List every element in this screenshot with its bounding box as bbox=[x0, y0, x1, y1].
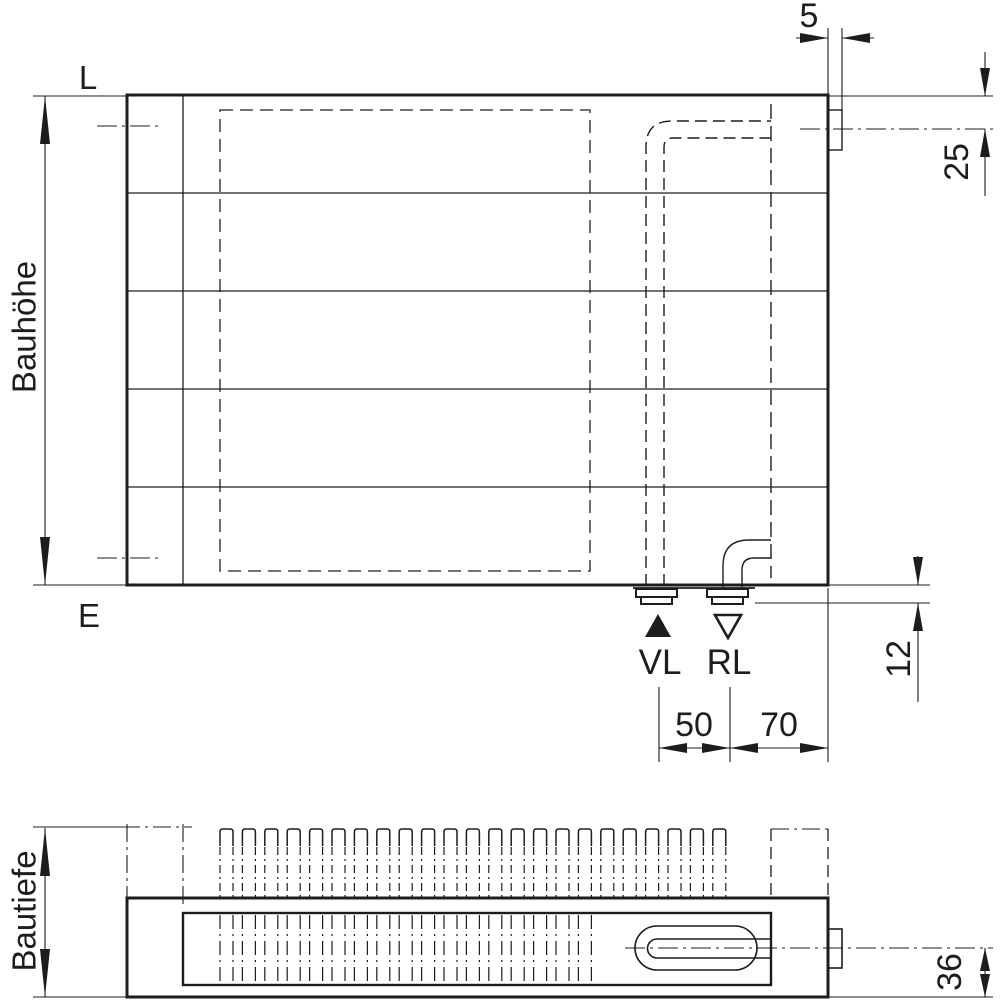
dim-label-25: 25 bbox=[938, 143, 976, 181]
return-stub bbox=[707, 589, 748, 597]
front-hidden-plate-outline bbox=[220, 110, 590, 571]
return-flow-arrow-icon bbox=[715, 615, 741, 638]
top-plate-outline bbox=[183, 913, 771, 985]
front-dimension-lines bbox=[45, 38, 985, 748]
radiator-dimension-drawing: L E 5 25 12 50 70 VL RL Bauhöhe bbox=[0, 0, 1000, 1000]
front-valve-tab bbox=[828, 110, 842, 150]
convector-fin-caps bbox=[220, 829, 726, 846]
supply-flow-arrow-icon bbox=[645, 614, 671, 637]
dim-label-70: 70 bbox=[760, 706, 798, 744]
port-label-VL: VL bbox=[639, 643, 682, 682]
port-label-RL: RL bbox=[707, 643, 752, 682]
front-extension-lines bbox=[33, 28, 993, 762]
front-view bbox=[33, 28, 993, 762]
height-dimension-label: Bauhöhe bbox=[6, 261, 43, 393]
inner-fin-hidden-lines bbox=[220, 915, 591, 983]
convector-fin-hidden-lines bbox=[220, 847, 726, 897]
front-return-elbow bbox=[723, 540, 771, 587]
front-body-outline bbox=[127, 95, 828, 585]
dim-label-36: 36 bbox=[931, 953, 969, 991]
bottom-connection-stubs bbox=[633, 588, 755, 604]
dim-label-5: 5 bbox=[800, 0, 819, 35]
supply-stub bbox=[636, 589, 677, 597]
depth-dimension-label: Bautiefe bbox=[6, 850, 43, 971]
top-view bbox=[33, 824, 993, 997]
ref-label-L: L bbox=[79, 59, 97, 96]
dim-label-50: 50 bbox=[675, 706, 713, 744]
top-projection-centerlines bbox=[127, 824, 183, 908]
dim-label-12: 12 bbox=[880, 640, 918, 678]
top-hidden-valve-projection bbox=[771, 829, 828, 898]
ref-label-E: E bbox=[78, 597, 100, 634]
front-hidden-supply-pipe bbox=[646, 121, 771, 586]
front-centerlines bbox=[97, 126, 993, 558]
technical-drawing-page: L E 5 25 12 50 70 VL RL Bauhöhe bbox=[0, 0, 1000, 1000]
front-panel-section-lines bbox=[127, 193, 828, 487]
